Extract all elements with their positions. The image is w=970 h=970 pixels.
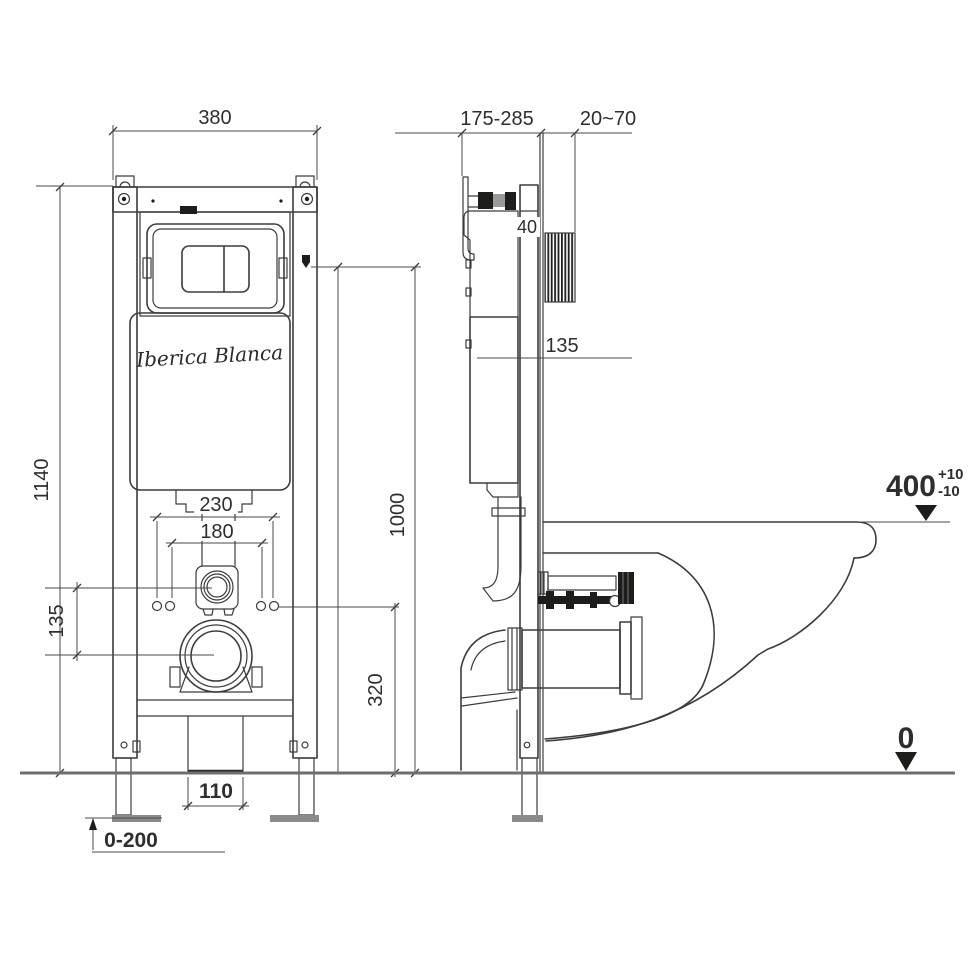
dim-supply-height: 1000 xyxy=(387,493,409,538)
dim-frame-height: 1140 xyxy=(31,458,53,501)
datum-triangle-icon xyxy=(915,505,937,521)
dim-leg-adjust: 0-200 xyxy=(104,829,158,852)
flush-bend xyxy=(483,566,521,601)
dim-pipe-offset: 135 xyxy=(46,604,68,637)
right-ear-tab xyxy=(296,176,314,187)
right-foot-plate xyxy=(270,815,319,822)
left-leg xyxy=(116,758,131,815)
brand-logo: Iberica Blanca xyxy=(135,340,284,372)
datum-floor-zero: 0 xyxy=(898,722,915,755)
datum-triangle-icon xyxy=(895,752,917,771)
fixing-studs xyxy=(538,572,634,609)
fixing-hole xyxy=(270,602,279,611)
dim-profile-depth: 40 xyxy=(517,217,537,237)
fixing-hole xyxy=(257,602,266,611)
fixing-hole xyxy=(166,602,175,611)
drain-box xyxy=(188,716,243,771)
drain-elbow xyxy=(461,630,505,770)
left-ear-tab xyxy=(116,176,134,187)
finished-wall-hatch xyxy=(545,233,575,302)
dimension-lines: 380 1140 175-285 20~70 40 135 1000 230 1… xyxy=(31,107,950,852)
supply-bracket xyxy=(463,177,516,260)
datum-markers: 400 +10 -10 0 xyxy=(886,466,964,771)
dim-cistern-offset: 135 xyxy=(545,335,578,357)
toilet-frame-installation-diagram: Iberica Blanca xyxy=(0,0,970,970)
front-fittings xyxy=(153,255,311,692)
valve-icon xyxy=(478,192,493,209)
flush-buttons xyxy=(182,246,249,292)
dim-frame-width: 380 xyxy=(198,107,231,129)
datum-rim-tol-plus: +10 xyxy=(938,466,963,483)
flush-plate xyxy=(140,206,290,316)
dim-drain-width: 110 xyxy=(199,780,233,803)
right-leg xyxy=(299,758,314,815)
dim-fixing-outer: 230 xyxy=(199,494,232,516)
dim-depth-range: 175-285 xyxy=(460,108,533,130)
top-clip-icon xyxy=(180,206,197,214)
datum-rim-height: 400 xyxy=(886,470,936,503)
cistern-side xyxy=(464,211,525,601)
drain-flange xyxy=(620,622,631,694)
wall-line xyxy=(540,133,543,773)
leg-adjust-arrow-icon xyxy=(89,818,97,830)
fixing-hole xyxy=(153,602,162,611)
drain-pipe xyxy=(522,630,620,688)
dim-fixing-inner: 180 xyxy=(200,521,233,543)
toilet-bowl-side xyxy=(543,522,876,741)
dim-wall-range: 20~70 xyxy=(580,108,636,130)
supply-connector-icon xyxy=(302,255,310,262)
datum-rim-tol-minus: -10 xyxy=(938,483,960,500)
dim-outlet-height: 320 xyxy=(365,673,387,706)
technical-drawing-canvas: Iberica Blanca xyxy=(0,0,970,970)
side-foot-plate xyxy=(512,815,543,822)
drain-assembly-side xyxy=(461,617,642,770)
stud-anchor-icon xyxy=(618,572,634,604)
